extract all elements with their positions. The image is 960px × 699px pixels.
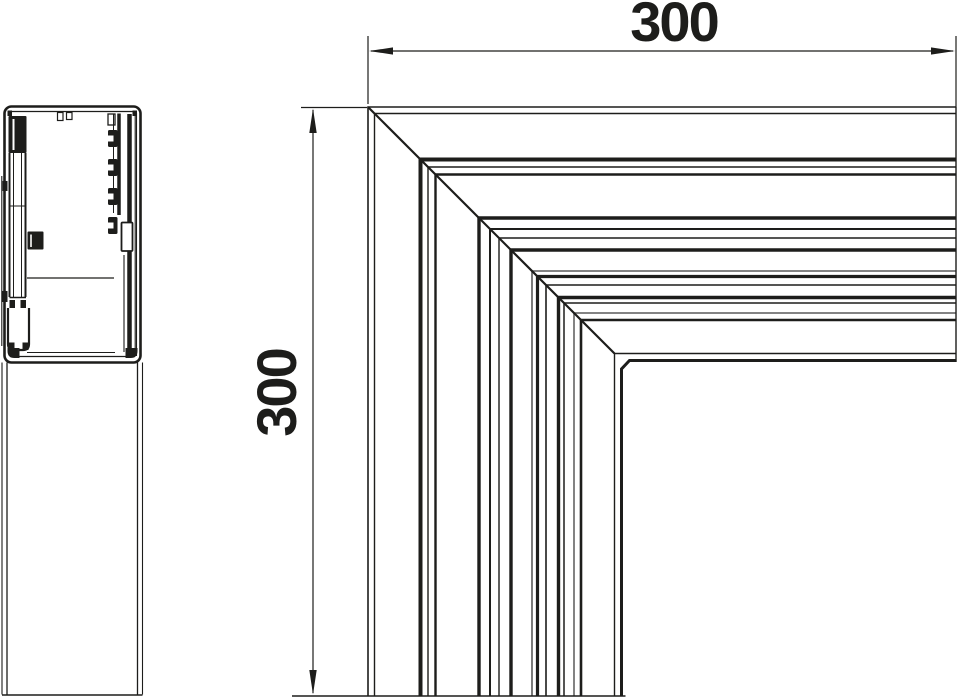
dimension-width-label: 300 (574, 0, 774, 50)
corner-view-drawing (292, 107, 956, 696)
clip-tabs (108, 130, 118, 234)
dimension-vertical (301, 108, 367, 695)
arrow-down-icon (309, 670, 316, 695)
drawing-linework (0, 0, 960, 699)
side-view-drawing (2, 107, 143, 696)
arrow-right-icon (931, 47, 955, 54)
dimension-height-label: 300 (249, 293, 305, 493)
arrow-left-icon (369, 47, 393, 54)
drawing-canvas: 300 300 (0, 0, 960, 699)
arrow-up-icon (309, 109, 316, 134)
